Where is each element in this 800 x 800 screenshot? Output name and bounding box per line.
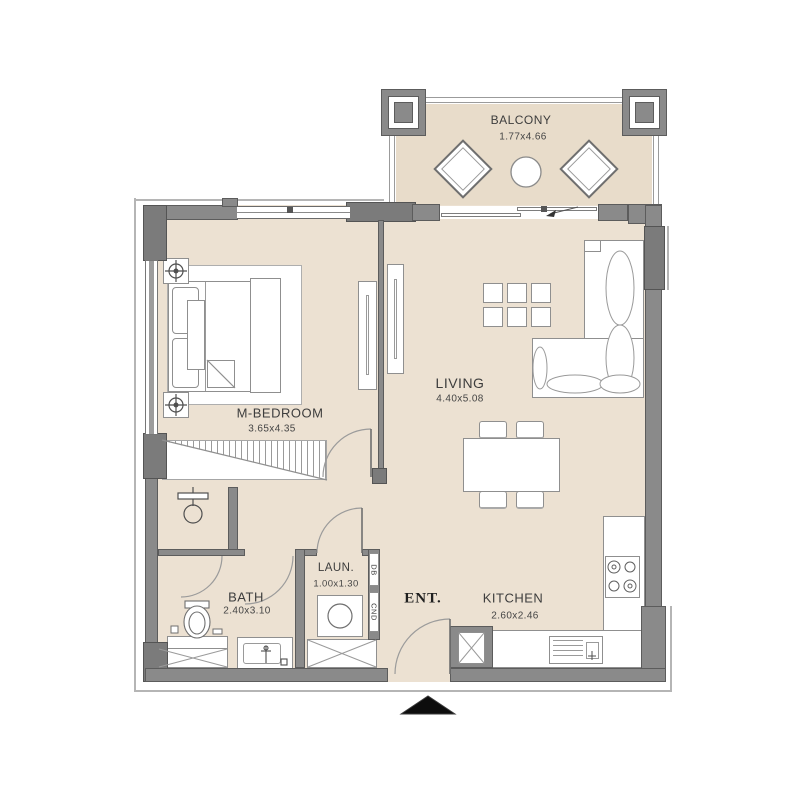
entry-shaft	[458, 632, 485, 664]
balcony-column-left	[381, 89, 426, 136]
wall-header-divider	[346, 202, 416, 222]
bedroom-dims: 3.65x4.35	[248, 424, 296, 435]
living-label: LIVING	[436, 375, 485, 391]
exterior-trim-right-upper	[667, 226, 669, 290]
exterior-trim-right-lower	[670, 606, 672, 690]
entry-label: ENT.	[404, 591, 441, 608]
exterior-trim-bottom	[134, 690, 672, 692]
washing-machine	[317, 595, 363, 637]
living-dims: 4.40x5.08	[436, 394, 484, 405]
bedroom-closet	[162, 440, 327, 480]
stove	[605, 556, 640, 598]
kitchen-dims: 2.60x2.46	[491, 611, 539, 622]
nightstand-bottom	[163, 392, 189, 418]
bath-cabinet	[158, 648, 228, 668]
bed-blanket-fold	[207, 360, 235, 388]
living-tv-unit	[387, 264, 404, 374]
sofa-horizontal-section	[532, 338, 644, 398]
wall-divider-foot	[372, 468, 387, 484]
wall-shower-right	[228, 487, 238, 556]
bed-mattress-line	[205, 282, 206, 391]
bath-dims: 2.40x3.10	[223, 606, 271, 617]
floor-plan: BALCONY 1.77x4.66 LIVING 4.40x5.08 M-BED…	[0, 0, 800, 800]
wall-pier-balcony-left	[412, 204, 440, 221]
kitchen-sink-unit	[549, 636, 603, 664]
wall-laundry-left	[295, 549, 305, 668]
dining-chair-top-left	[479, 421, 507, 439]
nightstand-top	[163, 258, 189, 284]
wall-bottom-left	[145, 668, 388, 682]
entrance-arrow-icon	[401, 696, 455, 714]
wall-bottom-right	[450, 668, 666, 682]
laundry-dims: 1.00x1.30	[313, 579, 358, 590]
balcony-sliding-door	[440, 206, 598, 219]
dining-chair-bottom-left	[479, 491, 507, 509]
db-panel-label: DB	[370, 564, 379, 575]
wall-pier-balcony-right	[598, 204, 628, 221]
bedroom-window	[237, 206, 350, 219]
laundry-label: LAUN.	[318, 562, 354, 574]
bedroom-wardrobe	[358, 281, 377, 390]
wall-bath-top	[158, 549, 245, 556]
dining-table	[463, 438, 560, 492]
wall-bedroom-living-divider	[378, 220, 384, 478]
balcony-dims: 1.77x4.66	[499, 132, 547, 143]
cnd-panel-label: CND	[370, 603, 379, 621]
wall-pier-left-top	[143, 205, 167, 261]
wall-pier-right	[644, 226, 665, 290]
balcony-label: BALCONY	[491, 113, 552, 127]
bed-foot-throw	[250, 278, 281, 393]
kitchen-label: KITCHEN	[483, 591, 544, 606]
sofa-armrest	[584, 240, 601, 252]
bed-bolster	[187, 300, 205, 370]
laundry-cabinet	[307, 639, 377, 668]
bathtub	[237, 637, 293, 670]
exterior-trim-top	[134, 199, 384, 201]
bedroom-side-window	[145, 260, 158, 435]
dining-chair-bottom-right	[516, 491, 544, 509]
dining-chair-top-right	[516, 421, 544, 439]
bedroom-label: M-BEDROOM	[237, 406, 324, 421]
wall-stub-top	[222, 198, 238, 207]
wall-pier-left-mid	[143, 433, 167, 479]
bath-label: BATH	[228, 590, 264, 605]
exterior-trim-left	[134, 198, 136, 692]
balcony-column-right	[622, 89, 667, 136]
coffee-table-set	[483, 283, 553, 327]
